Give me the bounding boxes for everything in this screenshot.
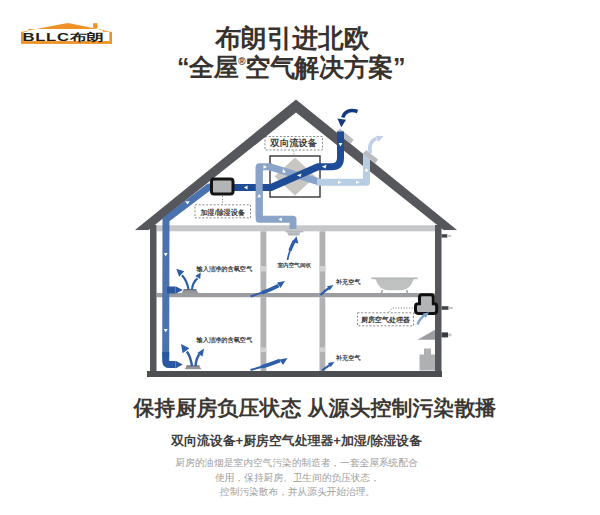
svg-text:补充空气: 补充空气 xyxy=(335,278,361,286)
svg-text:保持厨房负压状态 从源头控制污染散播: 保持厨房负压状态 从源头控制污染散播 xyxy=(133,396,497,419)
svg-text:双向流设备+厨房空气处理器+加湿/除湿设备: 双向流设备+厨房空气处理器+加湿/除湿设备 xyxy=(170,433,423,448)
svg-text:BLLC布朗: BLLC布朗 xyxy=(23,31,105,43)
svg-text:输入洁净的含氧空气: 输入洁净的含氧空气 xyxy=(196,265,254,273)
svg-text:厨房的油烟是室内空气污染的制造者，一套全屋系统配合: 厨房的油烟是室内空气污染的制造者，一套全屋系统配合 xyxy=(175,457,418,468)
svg-text:加湿/除湿设备: 加湿/除湿设备 xyxy=(200,208,246,217)
svg-text:“全屋®空气解决方案”: “全屋®空气解决方案” xyxy=(177,53,405,81)
svg-text:使用，保持厨房、卫生间的负压状态，: 使用，保持厨房、卫生间的负压状态， xyxy=(214,472,380,483)
svg-text:室内空气回收: 室内空气回收 xyxy=(278,262,312,269)
svg-text:控制污染散布，并从源头开始治理。: 控制污染散布，并从源头开始治理。 xyxy=(219,486,375,497)
svg-text:双向流设备: 双向流设备 xyxy=(270,137,318,148)
svg-text:厨房空气处理器: 厨房空气处理器 xyxy=(360,315,410,324)
svg-text:输入洁净的含氧空气: 输入洁净的含氧空气 xyxy=(196,336,254,344)
svg-text:布朗引进北欧: 布朗引进北欧 xyxy=(214,24,370,52)
svg-text:补充空气: 补充空气 xyxy=(335,354,361,362)
